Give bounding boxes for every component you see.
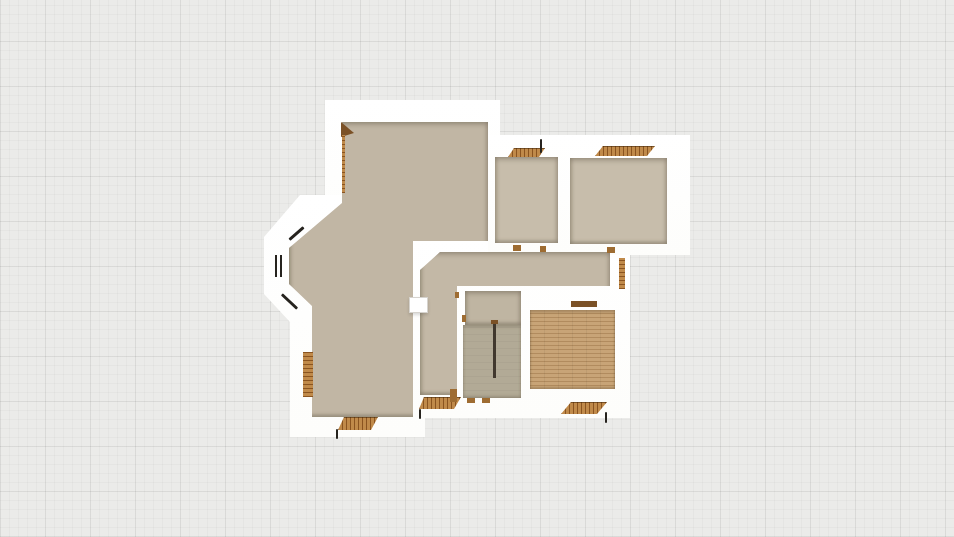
- jamb-hall-east-top[interactable]: [607, 247, 615, 253]
- threshold-bottom-left[interactable]: [338, 417, 378, 430]
- door-bay-left[interactable]: [303, 352, 313, 397]
- jamb-room-a-right[interactable]: [540, 246, 546, 252]
- threshold-room-b[interactable]: [595, 146, 655, 156]
- door-edge-top-room[interactable]: [342, 135, 345, 193]
- stair-rail-cap[interactable]: [491, 320, 498, 324]
- door-white-open[interactable]: [409, 297, 428, 313]
- floor-room-top-b[interactable]: [570, 158, 667, 244]
- jamb-stair-left-1[interactable]: [455, 292, 459, 298]
- jamb-stair-left-2[interactable]: [462, 315, 466, 322]
- floor-wood-room[interactable]: [530, 310, 615, 389]
- door-swing-room-a[interactable]: [540, 139, 542, 153]
- door-swing-wood-room[interactable]: [605, 412, 607, 423]
- jamb-stair-bottom-2[interactable]: [482, 398, 490, 403]
- floor-stair-lower[interactable]: [463, 325, 521, 398]
- door-swing-bottom-left[interactable]: [336, 429, 338, 439]
- threshold-wood-room-north[interactable]: [571, 301, 597, 307]
- floor-plan-canvas[interactable]: [0, 0, 954, 537]
- door-stair-left[interactable]: [450, 389, 457, 402]
- floor-room-top-a[interactable]: [495, 157, 558, 243]
- door-leaf-hall-east[interactable]: [619, 258, 625, 289]
- jamb-room-a-left[interactable]: [513, 245, 521, 251]
- window-bay-middle[interactable]: [275, 255, 282, 277]
- stair-rail[interactable]: [493, 322, 496, 378]
- jamb-stair-bottom-1[interactable]: [467, 398, 475, 403]
- door-swing-hall-south[interactable]: [419, 409, 421, 419]
